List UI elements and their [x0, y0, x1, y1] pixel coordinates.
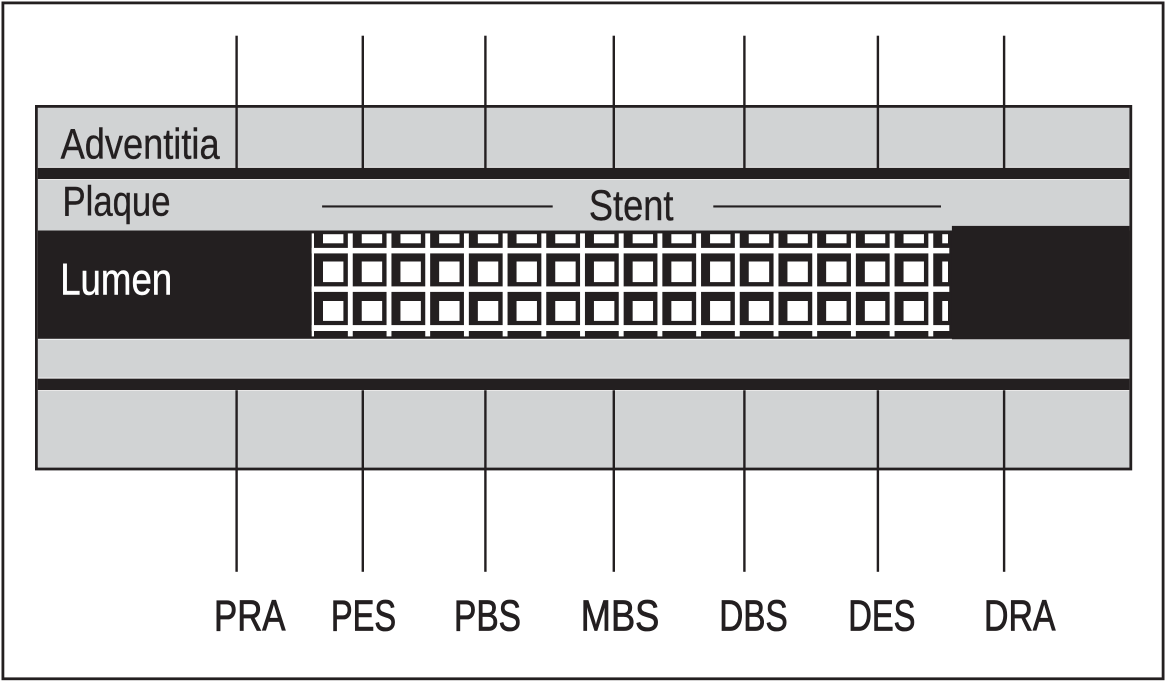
svg-text:Plaque: Plaque [63, 177, 171, 224]
svg-text:DES: DES [848, 592, 915, 641]
svg-text:Adventitia: Adventitia [61, 121, 220, 169]
svg-text:DRA: DRA [984, 592, 1056, 641]
svg-text:PRA: PRA [214, 592, 286, 641]
svg-text:Stent: Stent [589, 182, 674, 230]
svg-text:PBS: PBS [454, 592, 521, 641]
svg-text:DBS: DBS [719, 592, 788, 641]
svg-text:Lumen: Lumen [60, 255, 172, 304]
svg-text:PES: PES [331, 592, 396, 641]
svg-text:MBS: MBS [581, 592, 660, 641]
